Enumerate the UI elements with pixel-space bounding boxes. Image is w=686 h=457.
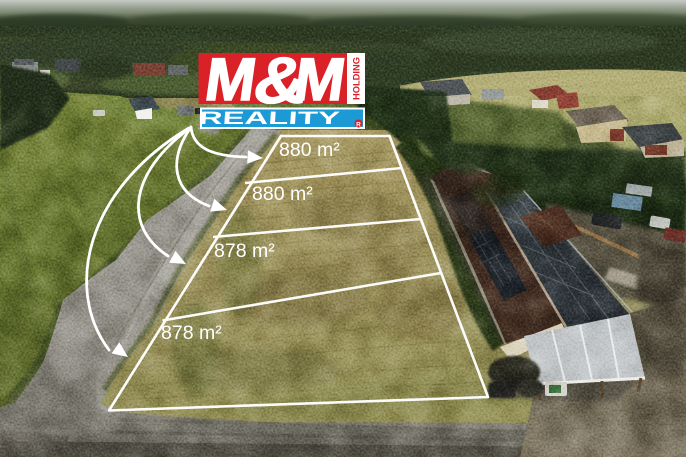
svg-text:HOLDING: HOLDING <box>352 57 362 100</box>
svg-text:878 m²: 878 m² <box>161 322 222 344</box>
svg-text:880 m²: 880 m² <box>252 183 313 205</box>
svg-text:878 m²: 878 m² <box>214 240 275 262</box>
svg-text:&: & <box>249 43 313 117</box>
svg-text:R: R <box>356 122 361 129</box>
svg-text:880 m²: 880 m² <box>279 139 340 161</box>
svg-text:REALITY: REALITY <box>198 108 340 128</box>
